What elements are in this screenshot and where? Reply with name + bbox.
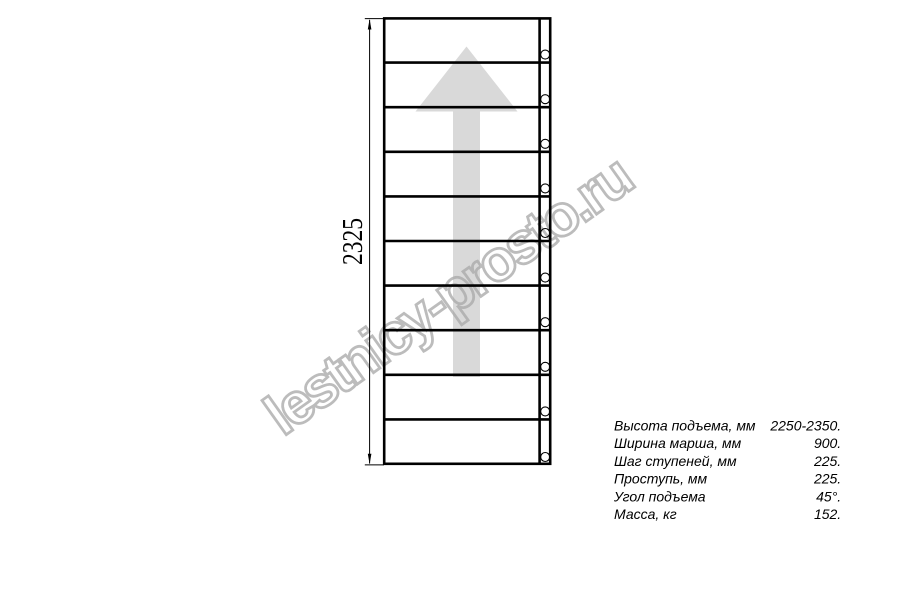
- svg-text:Ширина марша, мм: Ширина марша, мм: [614, 435, 742, 451]
- svg-text:lestnicy-prosto.ru: lestnicy-prosto.ru: [253, 144, 643, 447]
- svg-text:Шаг ступеней, мм: Шаг ступеней, мм: [614, 453, 737, 469]
- svg-text:Масса, кг: Масса, кг: [614, 506, 677, 522]
- svg-text:Высота подъема, мм: Высота подъема, мм: [614, 417, 756, 433]
- svg-text:152.: 152.: [814, 506, 841, 522]
- svg-text:45°.: 45°.: [816, 488, 841, 504]
- svg-text:Проступь, мм: Проступь, мм: [614, 471, 708, 487]
- svg-text:900.: 900.: [814, 435, 841, 451]
- svg-text:Угол подъема: Угол подъема: [613, 488, 706, 504]
- svg-text:225.: 225.: [813, 453, 841, 469]
- svg-text:2325: 2325: [337, 218, 369, 265]
- svg-text:225.: 225.: [813, 471, 841, 487]
- svg-text:2250-2350.: 2250-2350.: [769, 417, 841, 433]
